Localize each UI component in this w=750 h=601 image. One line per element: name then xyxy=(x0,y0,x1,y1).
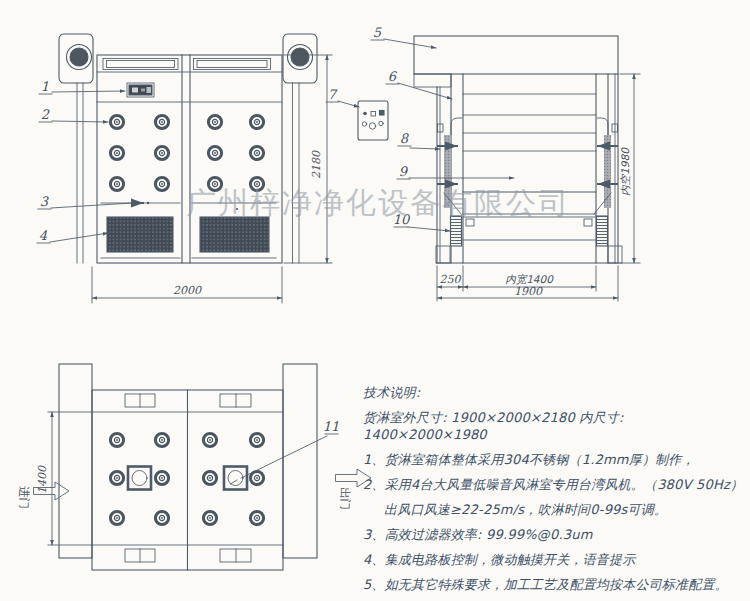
front-height-dim: 2180 xyxy=(310,150,323,179)
top-plenum xyxy=(414,36,618,74)
callout-4: 4 xyxy=(39,228,48,243)
callout-1: 1 xyxy=(41,79,49,94)
tech-note-item: 1、货淋室箱体整体采用304不锈钢（1.2mm厚）制作， xyxy=(363,451,749,468)
nozzle-icon xyxy=(203,471,216,484)
side-view: 250 内宽1400 1900 内空1980 5 6 7 8 9 10 xyxy=(326,25,640,301)
nozzle-icon xyxy=(110,433,123,446)
nozzle-icon xyxy=(250,433,263,446)
nozzle-icon xyxy=(155,471,168,484)
door-handle xyxy=(584,219,592,226)
fan-icon xyxy=(70,48,88,66)
air-shower-drawing-sheet: 2000 2180 1 2 3 4 xyxy=(0,0,750,601)
nozzle-icon xyxy=(208,115,221,128)
side-wall-dim: 250 xyxy=(440,273,462,286)
tech-note-item: 出风口风速≥22-25m/s，吹淋时间0-99s可调。 xyxy=(363,501,749,518)
side-inner-height-dim: 内空1980 xyxy=(619,147,631,196)
nozzle-icon xyxy=(110,177,123,190)
nozzle-icon xyxy=(250,471,263,484)
side-total-dim: 1900 xyxy=(514,285,543,298)
nozzle-icon xyxy=(155,511,168,524)
front-width-dim: 2000 xyxy=(173,284,202,297)
tech-notes-dimensions: 货淋室外尺寸: 1900×2000×2180 内尺寸: 1400×2000×19… xyxy=(363,409,749,443)
nozzle-icon xyxy=(208,146,221,159)
nozzle-icon xyxy=(110,146,123,159)
plan-depth-dim: 1400 xyxy=(36,465,49,494)
callout-3: 3 xyxy=(40,194,50,209)
company-watermark: 广州梓净净化设备有限公司 xyxy=(186,183,570,224)
tech-note-item: 2、采用4台大风量低噪音风淋室专用台湾风机。（380V 50Hz） xyxy=(363,476,749,493)
callout-2: 2 xyxy=(41,107,50,122)
callout-9: 9 xyxy=(399,164,409,179)
filter xyxy=(597,216,608,246)
exit-door-label: 出门 xyxy=(338,487,352,510)
callout-5: 5 xyxy=(373,25,382,40)
callout-6: 6 xyxy=(388,69,398,84)
lamp-fixture xyxy=(224,467,247,490)
nozzle-icon xyxy=(155,146,168,159)
tech-notes: 技术说明: 货淋室外尺寸: 1900×2000×2180 内尺寸: 1400×2… xyxy=(363,384,749,601)
nozzle-icon xyxy=(203,511,216,524)
corner-column xyxy=(59,364,92,558)
nozzle-icon xyxy=(110,471,123,484)
nozzle-icon xyxy=(110,511,123,524)
nozzle-icon xyxy=(155,115,168,128)
remote-control-box xyxy=(358,101,388,140)
nozzle-icon xyxy=(250,115,263,128)
control-panel xyxy=(127,83,154,97)
nozzle-icon xyxy=(155,177,168,190)
nozzle-icon xyxy=(155,433,168,446)
side-inner-width-dim: 内宽1400 xyxy=(505,273,554,285)
callout-11: 11 xyxy=(323,419,340,434)
return-grille xyxy=(107,217,173,252)
plan-view: 1400 进门 出门 11 xyxy=(17,364,371,570)
tech-notes-title: 技术说明: xyxy=(363,384,749,401)
tech-note-item: 3、高效过滤器效率: 99.99%@0.3um xyxy=(363,526,749,543)
callout-8: 8 xyxy=(400,131,410,146)
front-view: 2000 2180 1 2 3 4 xyxy=(37,34,332,303)
tech-note-item: 5、如无其它特殊要求，加工工艺及配置均按本公司标准配置。 xyxy=(363,576,749,593)
fan-icon xyxy=(291,48,309,66)
nozzle-icon xyxy=(250,511,263,524)
lamp-fixture xyxy=(128,467,151,490)
tech-note-item: 4、集成电路板控制，微动触摸开关，语音提示 xyxy=(363,551,749,568)
callout-7: 7 xyxy=(328,87,338,102)
entry-door-label: 进门 xyxy=(17,486,31,509)
corner-column xyxy=(283,364,317,558)
nozzle-icon xyxy=(110,115,123,128)
nozzle-icon xyxy=(250,146,263,159)
nozzle-icon xyxy=(203,433,216,446)
